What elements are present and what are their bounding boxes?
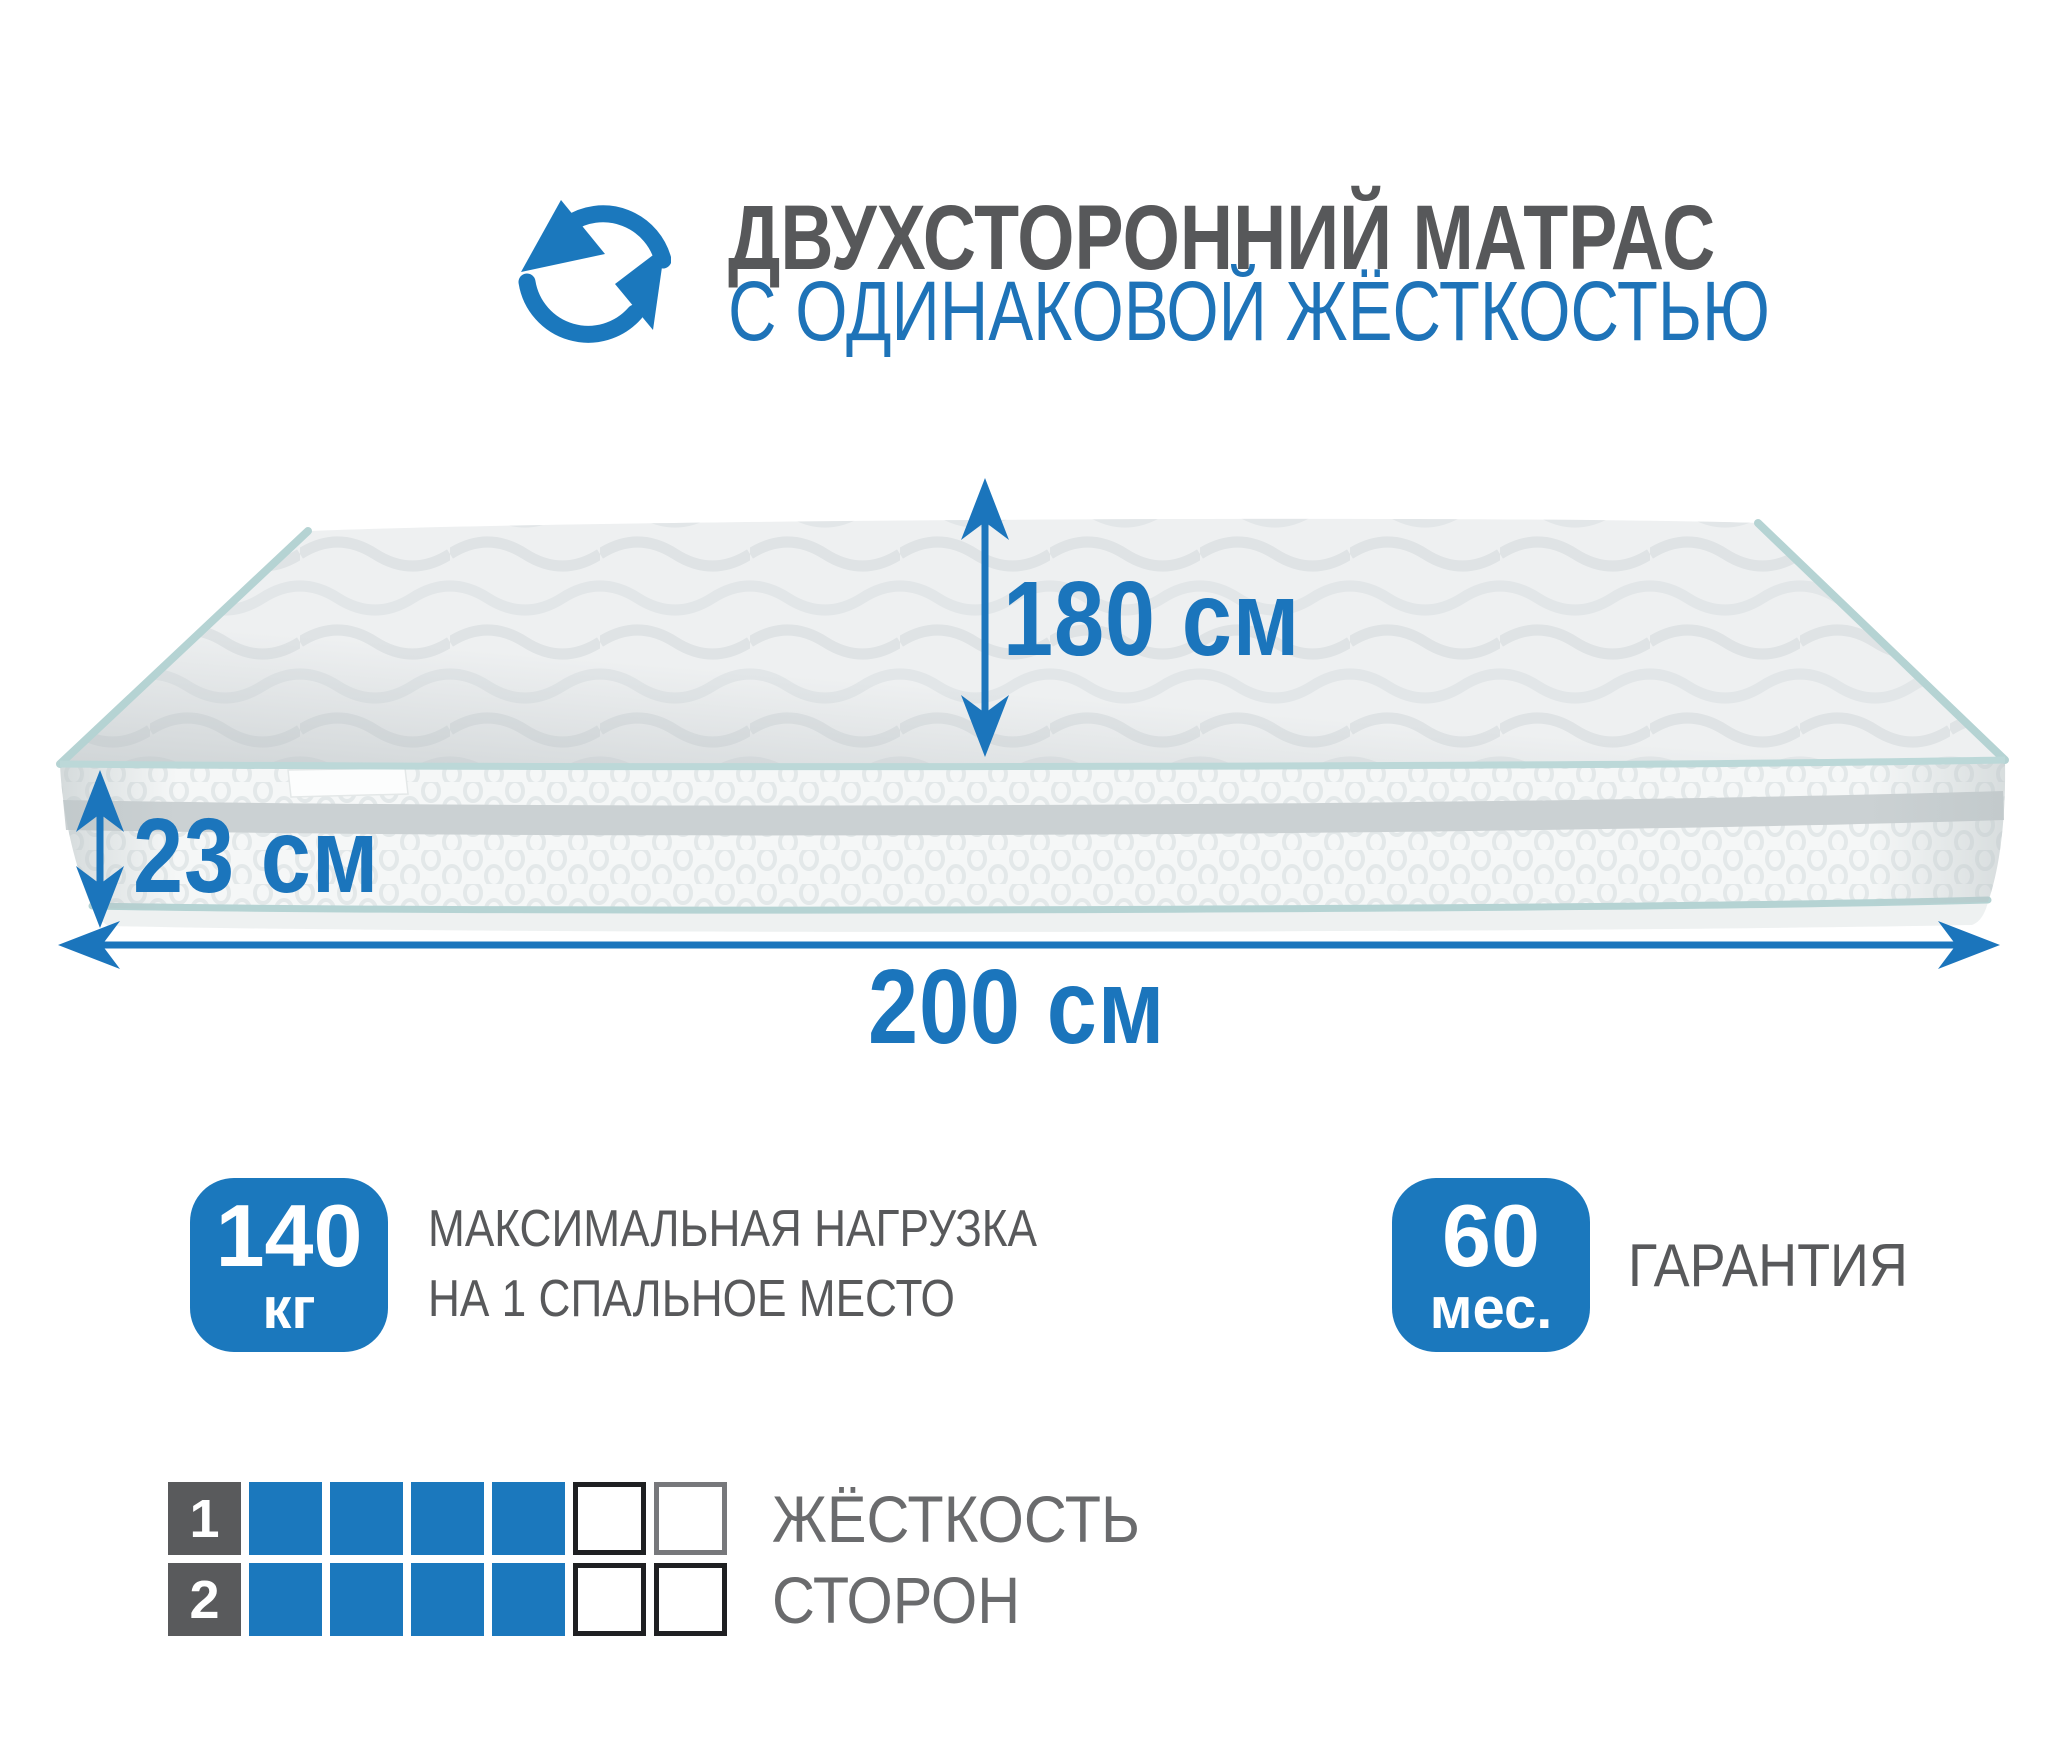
warranty-unit: мес. <box>1430 1281 1553 1336</box>
side-number: 2 <box>168 1563 241 1636</box>
firmness-row-side-1: 1 <box>168 1482 727 1555</box>
firmness-cell-empty <box>573 1482 646 1555</box>
length-label: 180 см <box>1003 559 1300 680</box>
firmness-cell-empty <box>654 1563 727 1636</box>
warranty-caption: ГАРАНТИЯ <box>1628 1178 1908 1352</box>
max-load-value: 140 <box>216 1194 363 1278</box>
firmness-cell-filled <box>249 1482 322 1555</box>
firmness-cell-filled <box>492 1482 565 1555</box>
firmness-cell-filled <box>411 1482 484 1555</box>
max-load-caption: МАКСИМАЛЬНАЯ НАГРУЗКА НА 1 СПАЛЬНОЕ МЕСТ… <box>428 1178 1037 1352</box>
height-label: 23 см <box>133 796 379 917</box>
side-number: 1 <box>168 1482 241 1555</box>
max-load-badge: 140 кг <box>190 1178 388 1352</box>
mattress-label-tag <box>288 768 408 797</box>
firmness-caption-line1: ЖЁСТКОСТЬ <box>772 1482 1140 1555</box>
firmness-caption-line2: СТОРОН <box>772 1563 1020 1636</box>
warranty-value: 60 <box>1442 1194 1540 1278</box>
warranty-badge: 60 мес. <box>1392 1178 1590 1352</box>
max-load-unit: кг <box>262 1281 315 1336</box>
firmness-cell-empty <box>573 1563 646 1636</box>
firmness-cell-filled <box>249 1563 322 1636</box>
firmness-cell-filled <box>330 1563 403 1636</box>
firmness-row-side-2: 2 <box>168 1563 727 1636</box>
mattress-infographic: ДВУХСТОРОННИЙ МАТРАС С ОДИНАКОВОЙ ЖЁСТКО… <box>0 0 2048 1757</box>
firmness-cell-filled <box>492 1563 565 1636</box>
firmness-cell-filled <box>330 1482 403 1555</box>
width-label: 200 см <box>868 947 1165 1068</box>
firmness-cell-empty <box>654 1482 727 1555</box>
firmness-cell-filled <box>411 1563 484 1636</box>
